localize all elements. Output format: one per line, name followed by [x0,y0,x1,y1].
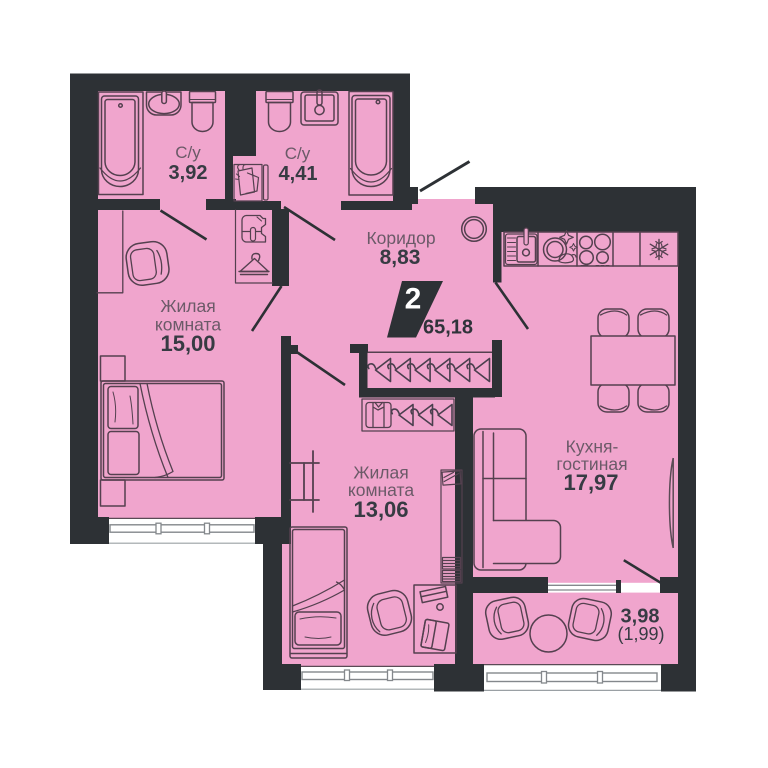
svg-text:С/у: С/у [175,143,201,162]
svg-text:17,97: 17,97 [563,470,618,495]
svg-text:15,00: 15,00 [160,331,215,356]
svg-text:8,83: 8,83 [380,246,421,269]
svg-text:Жилая: Жилая [160,296,215,316]
svg-text:4,41: 4,41 [279,163,318,185]
svg-text:3,92: 3,92 [169,162,208,184]
svg-text:С/у: С/у [285,144,311,163]
svg-text:(1,99): (1,99) [617,624,664,644]
svg-text:13,06: 13,06 [353,497,408,522]
svg-text:Коридор: Коридор [366,228,435,248]
svg-text:65,18: 65,18 [423,317,473,339]
svg-text:2: 2 [405,283,422,316]
